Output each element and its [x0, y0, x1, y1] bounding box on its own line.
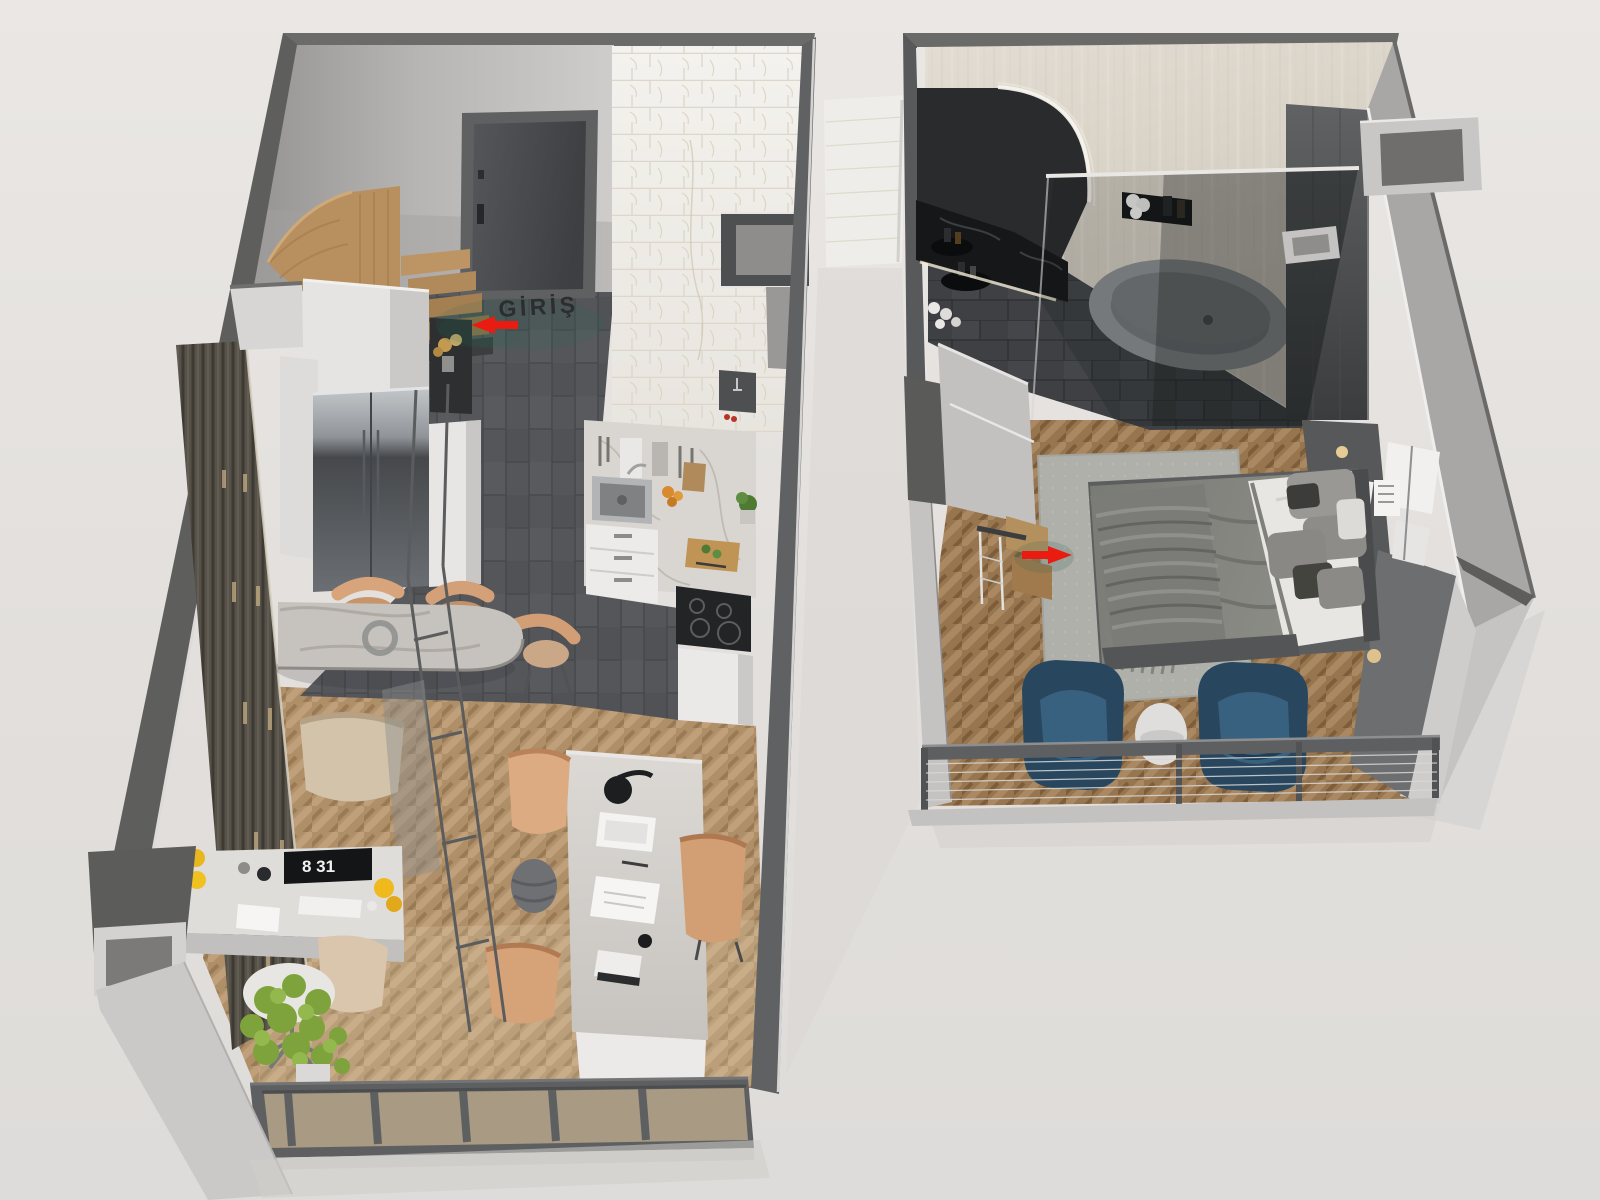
- svg-text:GİRİŞ: GİRİŞ: [498, 291, 580, 322]
- svg-text:8 31: 8 31: [302, 857, 335, 876]
